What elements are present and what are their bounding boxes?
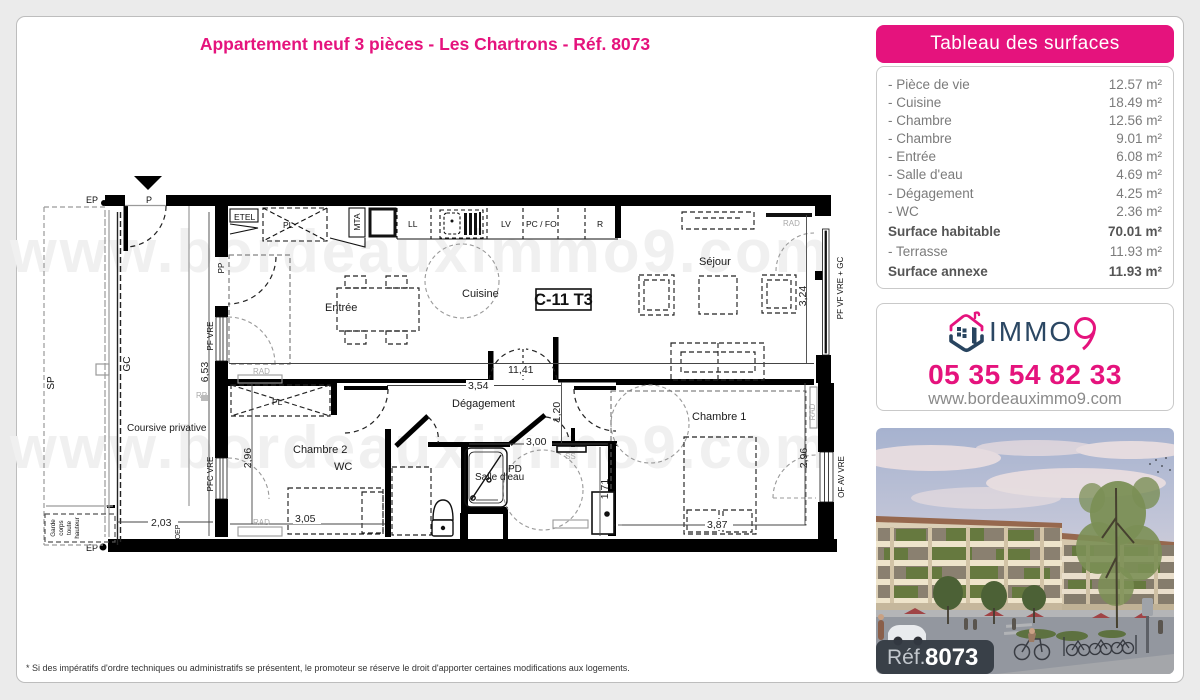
svg-text:Dégagement: Dégagement bbox=[452, 398, 515, 410]
svg-text:2,96: 2,96 bbox=[798, 448, 810, 469]
svg-text:corps: corps bbox=[58, 520, 65, 535]
svg-text:PP: PP bbox=[217, 263, 226, 274]
svg-text:WC: WC bbox=[334, 461, 352, 473]
svg-text:Chambre 2: Chambre 2 bbox=[293, 444, 347, 456]
svg-text:GC: GC bbox=[122, 357, 133, 372]
svg-text:P: P bbox=[146, 195, 152, 205]
svg-text:RAD: RAD bbox=[253, 518, 270, 527]
svg-text:2,96: 2,96 bbox=[242, 448, 254, 469]
svg-text:1,20: 1,20 bbox=[551, 402, 563, 423]
svg-text:ETEL: ETEL bbox=[234, 212, 256, 222]
svg-text:Entrée: Entrée bbox=[325, 302, 357, 314]
svg-text:C-11 T3: C-11 T3 bbox=[534, 291, 593, 309]
svg-text:LL: LL bbox=[408, 219, 418, 229]
svg-text:PL: PL bbox=[283, 220, 294, 230]
svg-text:RAD: RAD bbox=[808, 403, 817, 420]
svg-text:Réf.: Réf. bbox=[887, 646, 926, 669]
svg-text:R: R bbox=[597, 219, 603, 229]
svg-text:Coursive privative: Coursive privative bbox=[127, 423, 207, 434]
svg-text:3,54: 3,54 bbox=[468, 380, 489, 392]
svg-text:SS: SS bbox=[565, 452, 576, 461]
svg-text:3,00: 3,00 bbox=[526, 436, 547, 448]
svg-text:8073: 8073 bbox=[925, 644, 978, 671]
svg-text:3,24: 3,24 bbox=[797, 286, 809, 307]
svg-text:LV: LV bbox=[501, 219, 511, 229]
svg-text:Garde: Garde bbox=[50, 519, 57, 537]
svg-text:SP: SP bbox=[46, 376, 57, 390]
svg-text:1,71: 1,71 bbox=[599, 479, 611, 500]
svg-text:RAD: RAD bbox=[783, 219, 800, 228]
svg-text:OEP: OEP bbox=[175, 524, 182, 539]
svg-text:hauteur: hauteur bbox=[74, 517, 81, 538]
svg-text:PC / FO: PC / FO bbox=[526, 219, 557, 229]
svg-text:PFC VRE: PFC VRE bbox=[206, 457, 215, 492]
svg-text:Séjour: Séjour bbox=[699, 256, 731, 268]
svg-text:3,05: 3,05 bbox=[295, 513, 316, 525]
svg-text:EP: EP bbox=[86, 195, 98, 205]
svg-text:2,03: 2,03 bbox=[151, 517, 172, 529]
svg-text:OF AV VRE: OF AV VRE bbox=[837, 456, 846, 498]
svg-text:Cuisine: Cuisine bbox=[462, 288, 499, 300]
svg-text:MTA: MTA bbox=[352, 213, 362, 231]
svg-text:PD: PD bbox=[508, 464, 522, 475]
svg-text:Chambre 1: Chambre 1 bbox=[692, 411, 746, 423]
svg-text:toute: toute bbox=[66, 521, 73, 536]
svg-text:PF VRE: PF VRE bbox=[206, 322, 215, 351]
svg-text:IMMO: IMMO bbox=[989, 316, 1073, 347]
svg-text:6,53: 6,53 bbox=[199, 362, 211, 383]
svg-text:RAD: RAD bbox=[253, 367, 270, 376]
svg-text:3,87: 3,87 bbox=[707, 519, 728, 531]
svg-text:PF VF VRE + GC: PF VF VRE + GC bbox=[836, 257, 845, 320]
svg-text:11,41: 11,41 bbox=[508, 364, 534, 376]
